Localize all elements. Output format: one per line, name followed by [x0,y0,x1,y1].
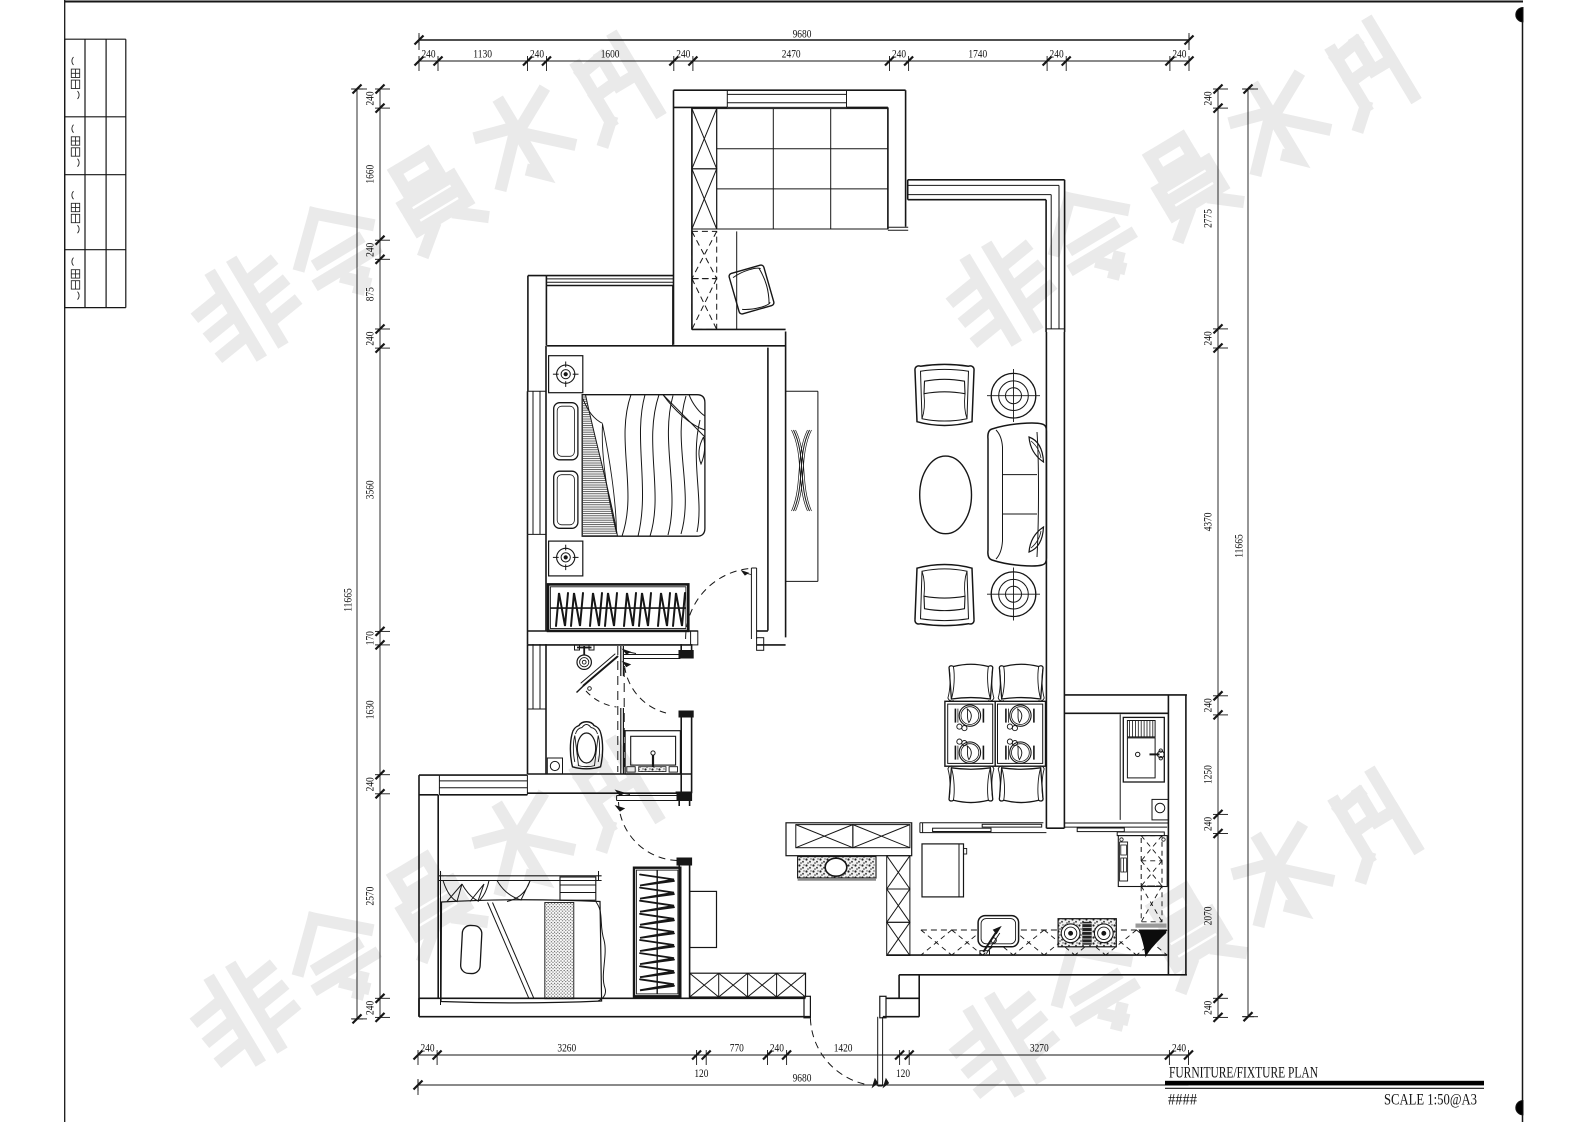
svg-text:240: 240 [892,47,906,61]
svg-text:240: 240 [420,1041,434,1055]
svg-text:1250: 1250 [1201,765,1215,784]
svg-text:2775: 2775 [1201,209,1215,228]
svg-text:2070: 2070 [1201,907,1215,926]
svg-text:240: 240 [363,777,377,791]
svg-text:240: 240 [1201,91,1215,105]
svg-text:1130: 1130 [473,47,492,61]
svg-text:2570: 2570 [363,887,377,906]
svg-text:9680: 9680 [793,26,812,40]
svg-text:240: 240 [363,332,377,346]
svg-text:240: 240 [1201,817,1215,831]
svg-text:9680: 9680 [793,1071,812,1085]
svg-text:####: #### [1168,1092,1197,1109]
svg-text:240: 240 [363,1001,377,1015]
svg-text:2470: 2470 [782,47,801,61]
svg-text:240: 240 [530,47,544,61]
svg-text:1740: 1740 [968,47,987,61]
svg-text:240: 240 [676,47,690,61]
svg-text:SCALE 1:50@A3: SCALE 1:50@A3 [1384,1092,1477,1109]
svg-text:240: 240 [363,243,377,257]
svg-text:1630: 1630 [363,700,377,719]
svg-text:120: 120 [896,1066,910,1080]
svg-text:770: 770 [730,1041,744,1055]
svg-text:3270: 3270 [1030,1041,1049,1055]
svg-text:240: 240 [1201,698,1215,712]
svg-text:1660: 1660 [363,165,377,184]
svg-text:11665: 11665 [1232,534,1246,558]
svg-text:FURNITURE/FIXTURE PLAN: FURNITURE/FIXTURE PLAN [1169,1065,1318,1082]
svg-text:3560: 3560 [363,480,377,499]
svg-text:120: 120 [694,1066,708,1080]
svg-text:240: 240 [1201,1001,1215,1015]
svg-text:1600: 1600 [601,47,620,61]
svg-text:240: 240 [1172,1041,1186,1055]
svg-text:3260: 3260 [557,1041,576,1055]
svg-text:11665: 11665 [341,588,355,612]
svg-text:4370: 4370 [1201,513,1215,532]
svg-text:240: 240 [421,47,435,61]
svg-text:240: 240 [1201,331,1215,345]
svg-text:1420: 1420 [834,1041,853,1055]
svg-text:240: 240 [1050,47,1064,61]
svg-text:240: 240 [363,91,377,105]
svg-text:875: 875 [363,287,377,301]
svg-text:170: 170 [363,631,377,645]
svg-text:240: 240 [770,1041,784,1055]
svg-text:240: 240 [1172,47,1186,61]
